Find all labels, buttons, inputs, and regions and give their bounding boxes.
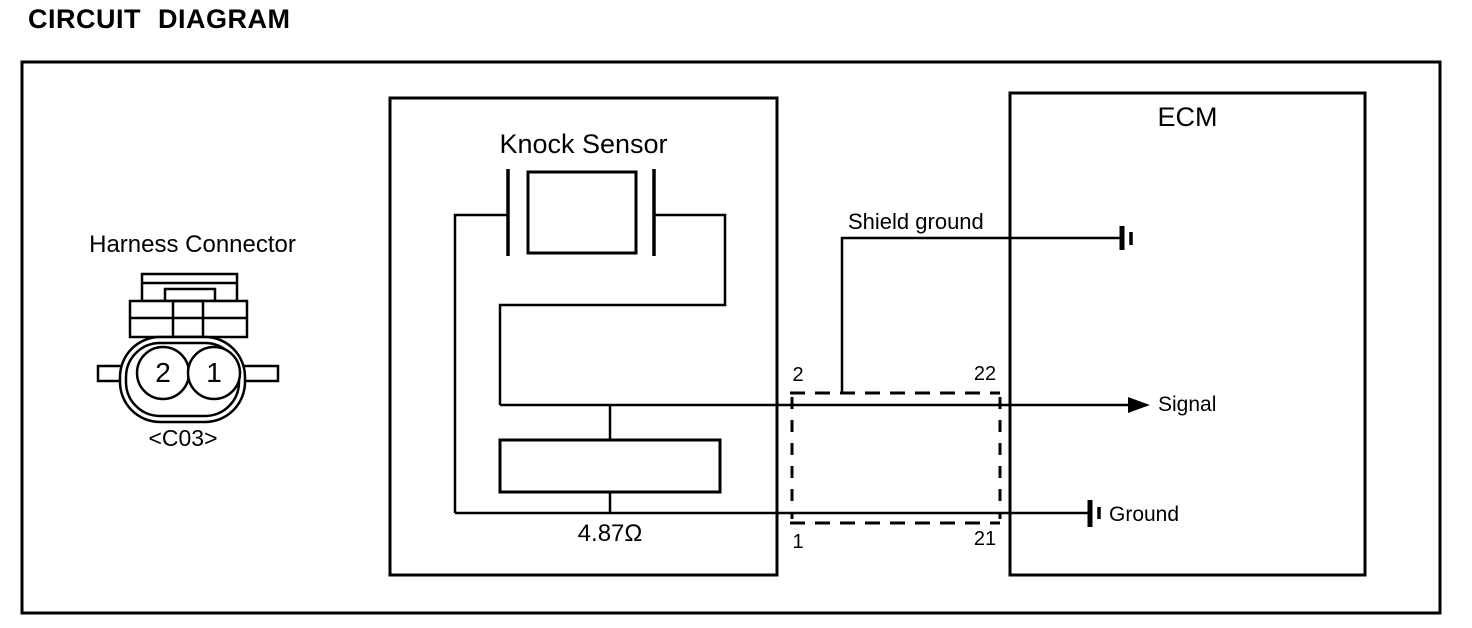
inline-pin-21-label: 21: [963, 528, 1007, 550]
ecm-label: ECM: [1010, 103, 1365, 133]
harness-connector-label: Harness Connector: [70, 232, 315, 258]
circuit-diagram-page: CIRCUIT DIAGRAM Harness Connector 2 1 <C…: [0, 0, 1472, 628]
signal-arrow-icon: [1128, 397, 1150, 413]
inline-pin-1-label: 1: [786, 531, 810, 553]
ground-label: Ground: [1109, 503, 1179, 526]
connector-code-label: <C03>: [120, 426, 246, 451]
shield-ground-label: Shield ground: [848, 210, 984, 234]
ecm-box: [1010, 93, 1365, 575]
page-title: CIRCUIT DIAGRAM: [28, 5, 290, 35]
knock-sensor-label: Knock Sensor: [390, 130, 777, 160]
connector-slot: [165, 289, 215, 301]
inline-pin-2-label: 2: [786, 364, 810, 386]
resistor-box: [500, 440, 720, 492]
inline-pin-22-label: 22: [963, 363, 1007, 385]
harness-pin-2-label: 2: [147, 358, 179, 389]
harness-pin-1-label: 1: [198, 358, 230, 389]
inline-connector-dashed-box: [790, 393, 1000, 523]
harness-connector-drawing: [98, 274, 278, 422]
piezo-element-rect: [528, 172, 636, 253]
resistance-value-label: 4.87Ω: [510, 521, 710, 547]
piezo-right-wire: [500, 215, 725, 405]
knock-sensor-box: [390, 98, 777, 575]
signal-label: Signal: [1158, 393, 1216, 416]
diagram-canvas: [0, 0, 1472, 628]
